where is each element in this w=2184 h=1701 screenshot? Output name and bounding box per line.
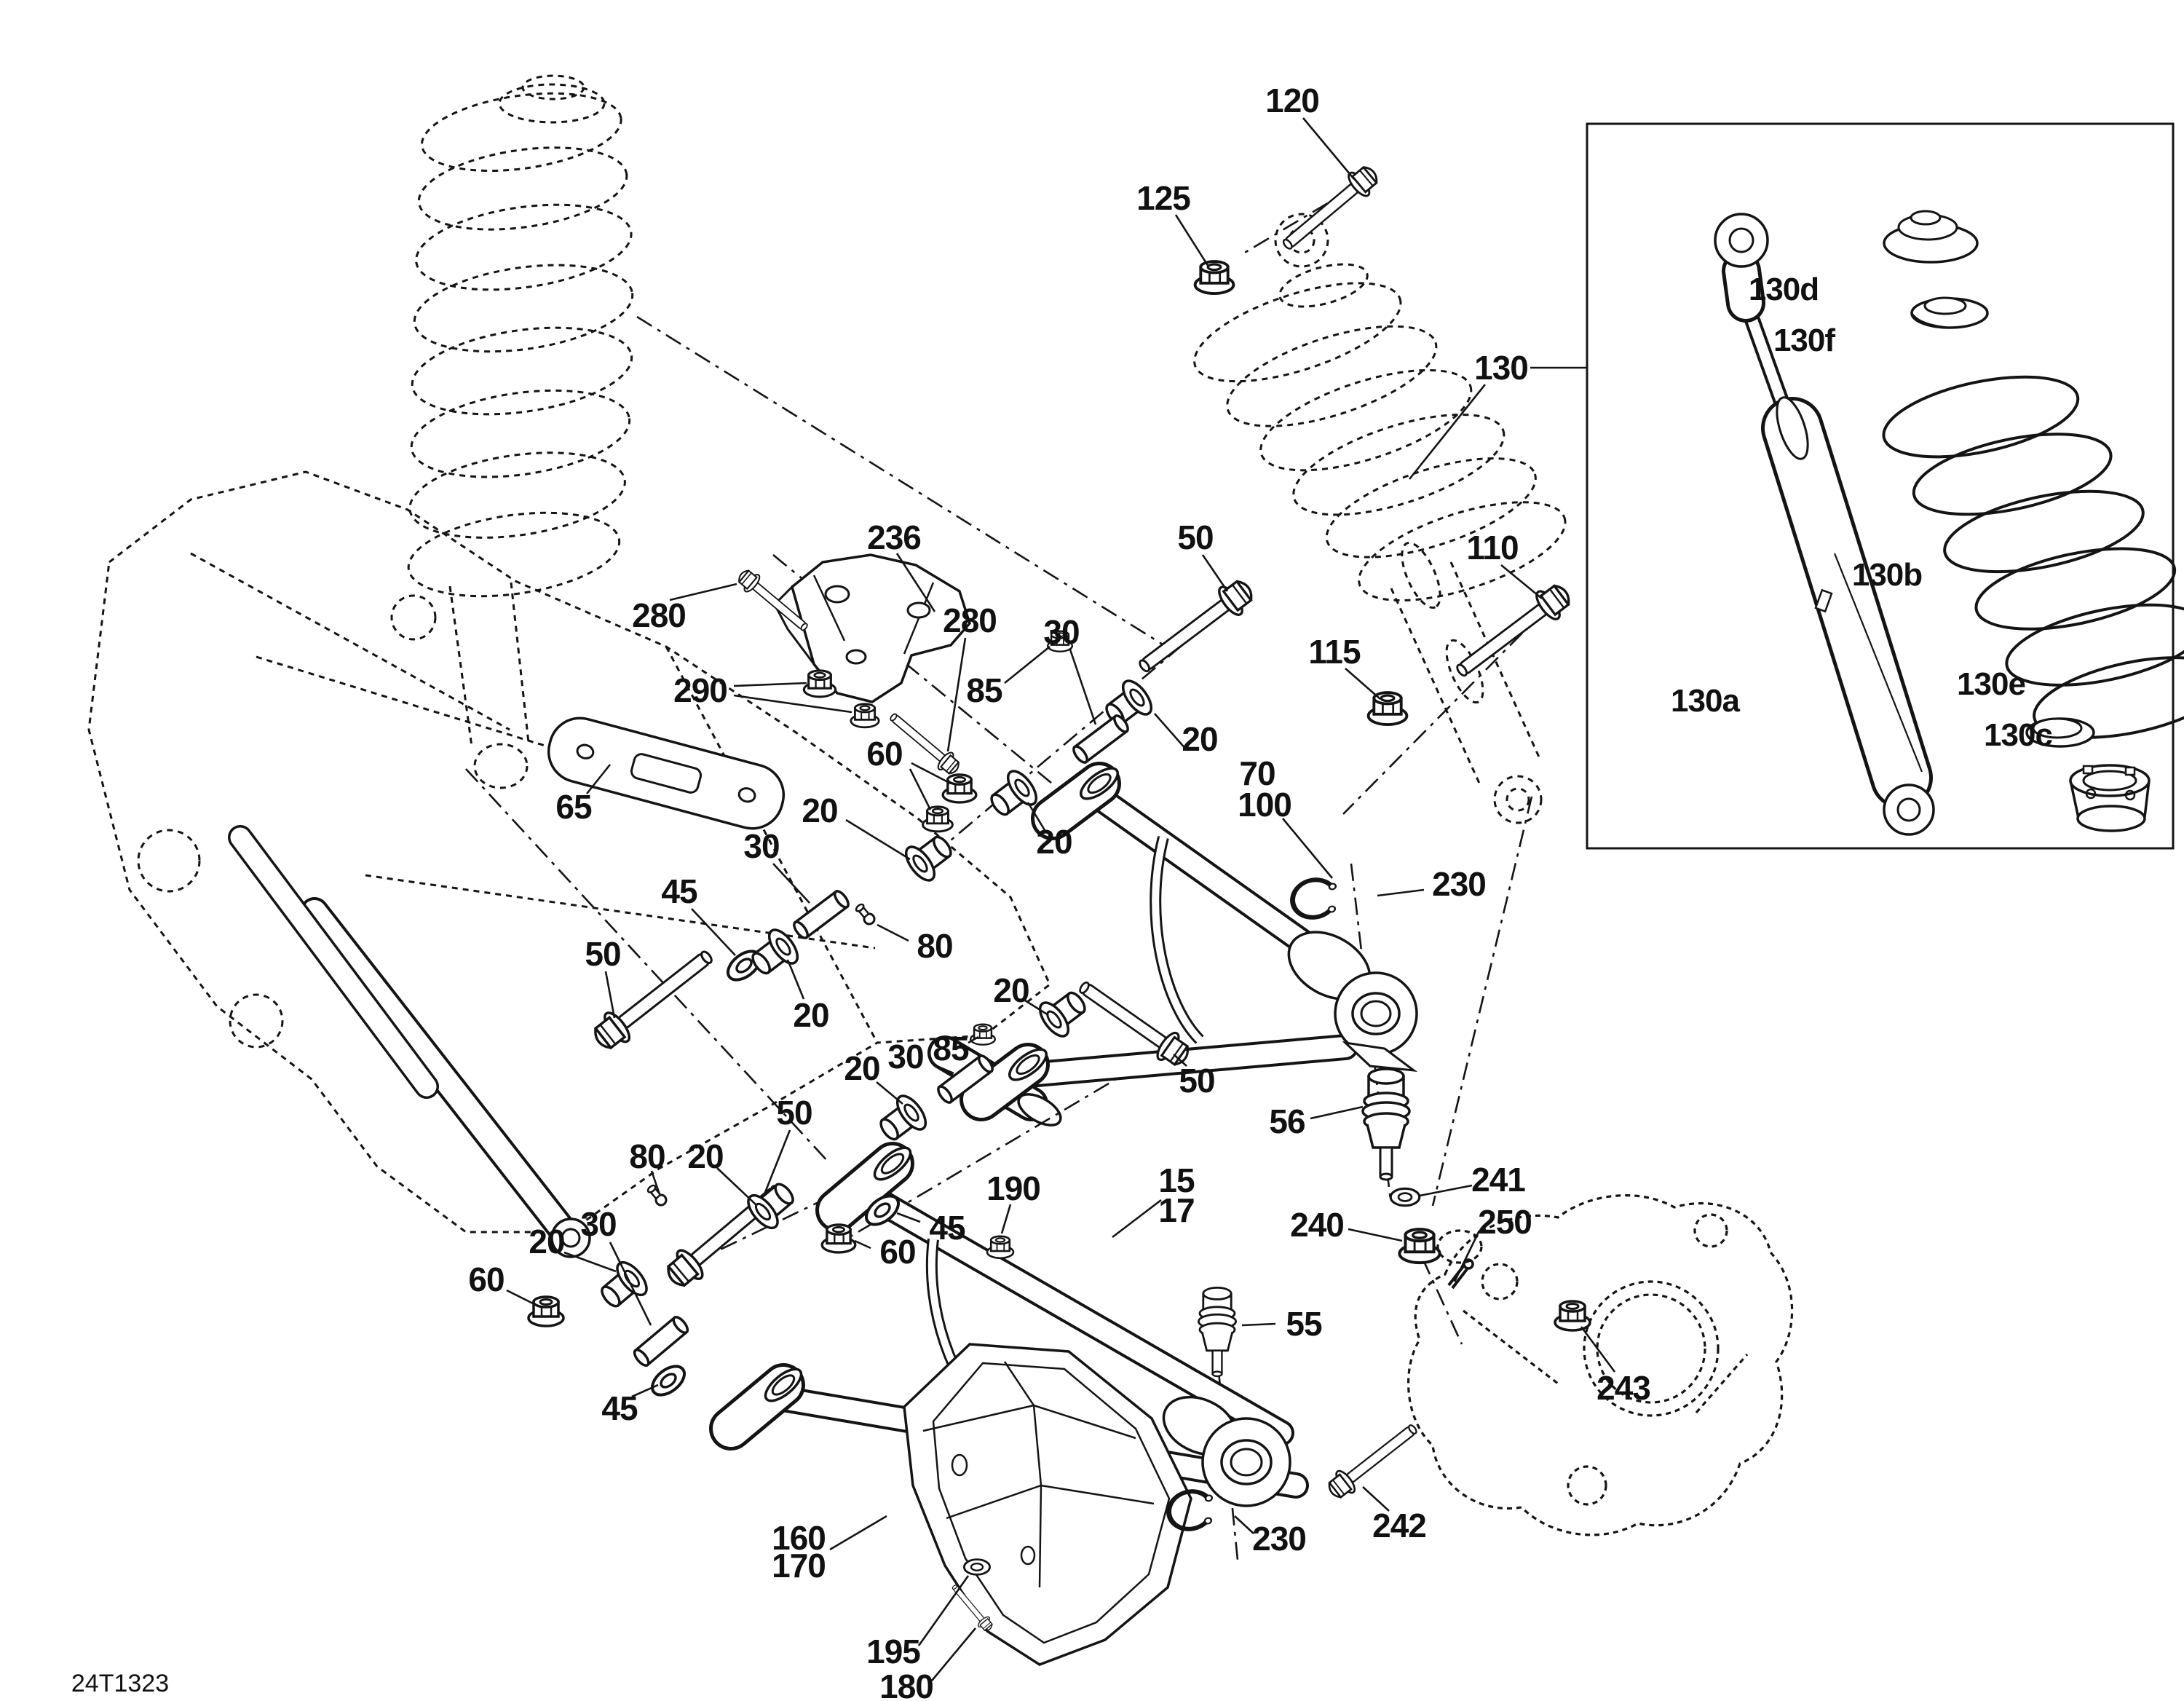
nut-125 — [1195, 261, 1234, 293]
diagram-page: 120 125 130 236 280 290 280 50 30 85 20 … — [0, 0, 2184, 1701]
nut-115 — [1369, 692, 1407, 725]
callout-17: 17 — [1158, 1193, 1194, 1227]
bolt-110 — [1449, 579, 1576, 686]
callout-60-lower: 60 — [468, 1263, 504, 1296]
callout-80-b: 80 — [629, 1140, 665, 1173]
shock-assembly-phantom — [1183, 214, 1576, 823]
callout-60-c: 60 — [879, 1235, 915, 1268]
callout-115: 115 — [1308, 635, 1360, 668]
knuckle-phantom — [1409, 1196, 1792, 1535]
callout-130: 130 — [1474, 351, 1528, 384]
nut-60-b — [923, 807, 953, 832]
spacer-30-a — [1071, 714, 1130, 765]
callout-85-a: 85 — [966, 674, 1002, 707]
skid-plate — [904, 1344, 1191, 1665]
nut-60-lower-rear — [529, 1297, 563, 1326]
callout-130a: 130a — [1671, 685, 1739, 717]
bolt-242 — [1324, 1418, 1423, 1503]
callout-20-b: 20 — [802, 794, 837, 827]
callout-236: 236 — [867, 521, 921, 554]
callout-100: 100 — [1238, 788, 1291, 821]
callout-85-b: 85 — [933, 1032, 968, 1065]
nut-60-c — [822, 1225, 855, 1252]
callout-20-h: 20 — [529, 1225, 564, 1258]
fitting-80-a — [855, 902, 877, 926]
callout-242: 242 — [1372, 1509, 1426, 1542]
callout-130d: 130d — [1749, 274, 1819, 306]
ball-joint-56 — [1363, 1069, 1409, 1180]
callout-230-lower: 230 — [1252, 1522, 1306, 1555]
callout-190: 190 — [986, 1172, 1040, 1205]
callout-80-a: 80 — [917, 929, 952, 963]
drawing-code: 24T1323 — [71, 1671, 169, 1696]
callout-110: 110 — [1466, 531, 1518, 564]
callout-30-c: 30 — [887, 1040, 923, 1073]
callout-195: 195 — [866, 1635, 920, 1668]
nut-60-a — [943, 775, 976, 802]
nut-240 — [1399, 1229, 1439, 1263]
callout-30-a: 30 — [1043, 615, 1079, 649]
callout-45-b: 45 — [601, 1392, 637, 1425]
callout-130f: 130f — [1773, 325, 1835, 357]
callout-30-d: 30 — [580, 1207, 616, 1241]
callout-50-c: 50 — [776, 1096, 812, 1129]
callout-280-right: 280 — [943, 604, 997, 637]
callout-230-upper: 230 — [1432, 867, 1486, 901]
callout-20-d: 20 — [793, 998, 828, 1032]
callout-65: 65 — [555, 790, 591, 824]
bolt-120 — [1276, 161, 1383, 257]
bushing-20-f — [873, 1092, 931, 1149]
nut-190 — [987, 1236, 1013, 1258]
nut-290-a — [804, 671, 835, 697]
bushing-20-b — [901, 828, 959, 885]
callout-125: 125 — [1136, 181, 1190, 215]
callout-30-b: 30 — [743, 829, 779, 863]
inset-seat-130f — [1912, 298, 1987, 328]
nut-85-rear — [970, 1025, 995, 1045]
callout-120: 120 — [1265, 84, 1319, 117]
upper-a-arm — [981, 763, 1417, 1100]
callout-290: 290 — [673, 674, 727, 707]
bolt-50-upper-front — [1132, 575, 1259, 682]
washer-241 — [1390, 1188, 1420, 1205]
callout-55: 55 — [1286, 1307, 1321, 1341]
callout-180: 180 — [879, 1670, 933, 1701]
washer-195 — [964, 1560, 989, 1575]
nut-243 — [1555, 1301, 1590, 1330]
callout-20-e: 20 — [993, 974, 1029, 1007]
callout-170: 170 — [772, 1549, 826, 1582]
callout-240: 240 — [1290, 1208, 1344, 1242]
inset-box — [1587, 124, 2184, 848]
callout-241: 241 — [1471, 1163, 1525, 1196]
snap-ring-230-upper — [1289, 875, 1342, 923]
bushing-20-g — [743, 1175, 802, 1233]
callout-130b: 130b — [1852, 559, 1922, 591]
diagram-artwork — [0, 0, 2184, 1701]
callout-50-d: 50 — [1179, 1064, 1214, 1097]
callout-280-left: 280 — [632, 599, 686, 632]
callout-130c: 130c — [1984, 719, 2052, 751]
callout-250: 250 — [1478, 1205, 1532, 1239]
callout-45-c: 45 — [929, 1211, 965, 1244]
callout-20-g: 20 — [687, 1140, 723, 1173]
cotter-pin-250 — [1449, 1260, 1473, 1288]
callout-20-a: 20 — [1182, 722, 1217, 756]
callout-243: 243 — [1597, 1371, 1650, 1405]
nut-290-b — [851, 704, 879, 727]
callout-50-a: 50 — [1177, 521, 1213, 554]
callout-20-c: 20 — [1036, 825, 1072, 859]
washer-45-b — [647, 1361, 689, 1401]
callout-50-b: 50 — [585, 937, 620, 971]
callout-45-a: 45 — [661, 875, 697, 908]
callout-60-a: 60 — [866, 737, 902, 770]
spacer-30-d — [632, 1315, 690, 1368]
spacer-30-b — [791, 889, 850, 940]
ball-joint-55 — [1198, 1287, 1235, 1376]
callout-56: 56 — [1269, 1105, 1305, 1138]
callout-20-f: 20 — [844, 1051, 879, 1085]
callout-130e: 130e — [1957, 668, 2025, 700]
